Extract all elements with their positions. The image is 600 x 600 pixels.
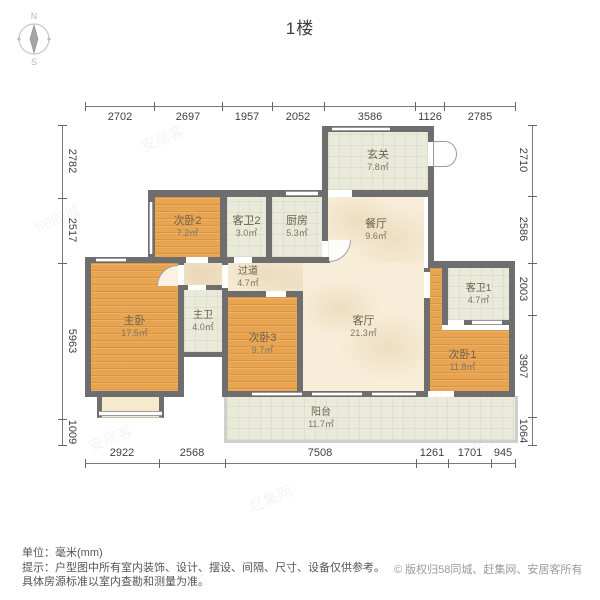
door-opening <box>234 257 252 263</box>
wall-segment <box>297 291 303 391</box>
dim-label: 3907 <box>517 354 529 378</box>
room-label: 次卧3 <box>248 331 276 345</box>
dim-label: 1064 <box>517 419 529 443</box>
dim-tick <box>448 459 449 468</box>
room-area: 7.8㎡ <box>367 162 389 174</box>
room-label: 次卧2 <box>173 214 201 228</box>
wall-segment <box>266 190 272 263</box>
window <box>472 320 502 325</box>
dim-tick <box>272 102 273 111</box>
dim-tick <box>85 459 86 468</box>
door-opening <box>266 291 286 297</box>
footer-notes: 单位：毫米(mm) 提示：户型图中所有室内装饰、设计、摆设、间隔、尺寸、设备仅供… <box>22 546 385 590</box>
dim-tick <box>528 315 537 316</box>
dim-tick <box>58 125 67 126</box>
window <box>332 127 390 131</box>
dim-tick <box>528 125 537 126</box>
watermark: 安居客 <box>138 120 188 156</box>
dim-label: 2702 <box>108 111 132 123</box>
room-bedroom2: 次卧2 7.2㎡ <box>155 197 220 257</box>
room-label: 过道 <box>238 265 258 278</box>
dim-line-right <box>532 125 533 445</box>
wall-segment <box>509 268 515 397</box>
room-entry-hall: 玄关 7.8㎡ <box>328 132 428 190</box>
room-area: 4.7㎡ <box>237 278 259 290</box>
svg-text:S: S <box>31 57 37 67</box>
room-area: 11.8㎡ <box>450 362 476 374</box>
dim-tick <box>85 102 86 111</box>
dim-tick <box>515 459 516 468</box>
room-bedroom1: 次卧1 11.8㎡ <box>430 330 509 391</box>
room-living: 客厅 21.3㎡ <box>303 263 424 391</box>
room-label: 主卫 <box>193 309 213 322</box>
door-opening <box>188 285 206 290</box>
room-area: 11.7㎡ <box>308 419 334 431</box>
room-area: 21.3㎡ <box>350 328 377 340</box>
dim-tick <box>225 459 226 468</box>
dim-tick <box>416 459 417 468</box>
window <box>286 191 318 196</box>
room-area: 17.5㎡ <box>121 328 148 340</box>
dim-tick <box>58 263 67 264</box>
dim-tick <box>528 263 537 264</box>
dim-label: 3586 <box>358 111 382 123</box>
dim-label: 2710 <box>517 148 529 172</box>
dim-line-left <box>62 125 63 445</box>
dim-tick <box>222 102 223 111</box>
dim-label: 2517 <box>66 218 78 242</box>
door-opening <box>186 257 208 263</box>
room-area: 5.3㎡ <box>286 228 308 240</box>
room-area: 9.7㎡ <box>252 345 274 357</box>
page-title: 1楼 <box>0 14 600 39</box>
dim-line-top <box>85 106 515 107</box>
room-area: 4.0㎡ <box>192 322 214 334</box>
room-guest-bath1: 客卫1 4.7㎡ <box>448 268 509 320</box>
dim-tick <box>515 102 516 111</box>
footer-tip-text: 户型图中所有室内装饰、设计、摆设、间隔、尺寸、设备仅供参考。 <box>55 562 385 574</box>
door-opening <box>424 272 430 298</box>
dim-tick <box>444 102 445 111</box>
window <box>149 202 153 254</box>
dim-tick <box>324 102 325 111</box>
dim-label: 2922 <box>110 447 134 459</box>
watermark: 赶集网 <box>246 480 296 516</box>
dim-tick <box>528 417 537 418</box>
wall-segment <box>352 190 434 197</box>
dim-label: 7508 <box>308 447 332 459</box>
door-opening <box>448 320 464 325</box>
room-area: 4.7㎡ <box>468 295 490 307</box>
dim-label: 2052 <box>286 111 310 123</box>
room-label: 客卫1 <box>466 282 492 295</box>
door-opening <box>428 391 454 397</box>
dim-label: 2568 <box>180 447 204 459</box>
dim-line-bottom <box>85 463 515 464</box>
room-label: 餐厅 <box>365 217 387 231</box>
dim-tick <box>528 445 537 446</box>
room-master-bath: 主卫 4.0㎡ <box>184 290 222 352</box>
room-balcony: 阳台 11.7㎡ <box>224 396 518 443</box>
room-kitchen: 厨房 5.3㎡ <box>272 197 322 257</box>
footer-tip-line1: 提示：户型图中所有室内装饰、设计、摆设、间隔、尺寸、设备仅供参考。 <box>22 561 385 576</box>
room-label: 玄关 <box>367 148 389 162</box>
door-opening <box>222 265 228 288</box>
wall-segment <box>85 257 91 397</box>
dim-label: 1126 <box>418 111 442 123</box>
dim-label: 2697 <box>176 111 200 123</box>
room-bedroom1-nook <box>430 268 442 330</box>
footer-tip-label: 提示： <box>22 562 55 574</box>
wall-segment <box>428 166 434 268</box>
svg-text:N: N <box>31 11 38 21</box>
footer-unit-value: 毫米(mm) <box>55 547 103 559</box>
dim-label: 1957 <box>235 111 259 123</box>
dim-label: 1261 <box>420 447 444 459</box>
room-area: 3.0㎡ <box>236 228 258 240</box>
wall-segment <box>322 126 328 197</box>
room-guest-bath2: 客卫2 3.0㎡ <box>227 197 266 257</box>
dim-label: 2785 <box>468 111 492 123</box>
footer-unit-label: 单位： <box>22 547 55 559</box>
floorplan-page: 1楼 N S 58同城 安居客 赶集网 安居客 58同城 安居客 赶集网 玄关 … <box>0 0 600 600</box>
wall-segment <box>220 190 227 263</box>
entry-door-arc <box>433 141 457 167</box>
dim-label: 2003 <box>517 277 529 301</box>
wall-segment <box>442 268 448 320</box>
wall-segment <box>428 126 434 142</box>
wall-segment <box>428 261 515 268</box>
wall-segment <box>322 197 328 241</box>
room-area: 7.2㎡ <box>177 228 199 240</box>
dim-label: 2586 <box>517 217 529 241</box>
balcony-slider-window <box>252 392 302 396</box>
balcony-slider-window <box>372 392 416 396</box>
copyright-text: © 版权归58同城、赶集网、安居客所有 <box>394 561 582 577</box>
hall-vestibule <box>184 263 222 285</box>
dim-tick <box>528 196 537 197</box>
balcony-slider-window <box>312 392 362 396</box>
bay-window-glass <box>99 411 162 416</box>
dim-tick <box>491 459 492 468</box>
dim-label: 2782 <box>66 149 78 173</box>
door-opening <box>178 265 184 285</box>
dim-tick <box>415 102 416 111</box>
room-label: 阳台 <box>311 406 331 419</box>
wall-segment <box>85 391 184 397</box>
wall-segment <box>178 352 228 357</box>
dim-label: 945 <box>494 447 512 459</box>
room-bedroom3: 次卧3 9.7㎡ <box>228 297 297 391</box>
room-label: 主卧 <box>124 314 146 328</box>
compass-icon: N S <box>8 6 60 68</box>
window <box>96 258 126 262</box>
dim-tick <box>159 459 160 468</box>
dim-tick <box>154 102 155 111</box>
footer-unit-line: 单位：毫米(mm) <box>22 546 385 561</box>
room-area: 9.6㎡ <box>365 231 387 243</box>
footer-tip-line2: 具体房源标准以室内查勘和测量为准。 <box>22 575 385 590</box>
room-label: 厨房 <box>286 214 308 228</box>
room-label: 客卫2 <box>232 214 260 228</box>
dim-tick <box>58 445 67 446</box>
dim-label: 5963 <box>66 329 78 353</box>
room-label: 次卧1 <box>448 348 476 362</box>
dim-tick <box>58 198 67 199</box>
room-label: 客厅 <box>353 314 375 328</box>
dim-label: 1701 <box>458 447 482 459</box>
dim-label: 1009 <box>66 420 78 444</box>
